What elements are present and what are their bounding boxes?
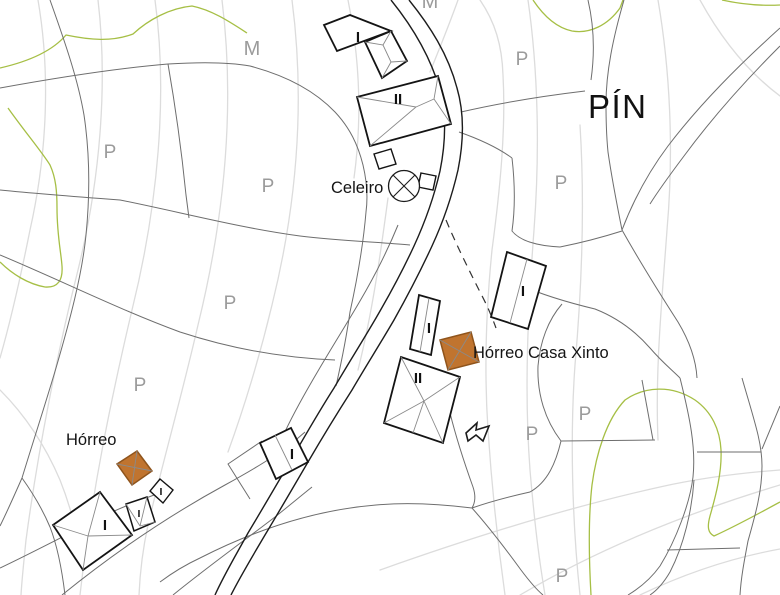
label-bld-diamond-i: I xyxy=(160,486,163,498)
label-celeiro: Celeiro xyxy=(331,179,383,197)
label-bld-narrow-i: I xyxy=(427,320,431,337)
label-bld-bottom-ii: II xyxy=(414,370,422,387)
label-bld-road-i: I xyxy=(290,446,294,463)
label-m-2: M xyxy=(422,0,439,13)
label-p-1: P xyxy=(104,142,117,163)
label-bld-top-ii: II xyxy=(394,91,402,108)
label-horreo-casa-xinto: Hórreo Casa Xinto xyxy=(473,344,609,362)
label-horreo: Hórreo xyxy=(66,431,116,449)
label-p-8: P xyxy=(579,404,592,425)
label-m-1: M xyxy=(244,38,261,60)
label-p-5: P xyxy=(516,49,529,70)
label-bld-small-i: I xyxy=(138,508,141,520)
small-square-2 xyxy=(418,173,436,190)
label-bld-top-i: I xyxy=(356,29,360,46)
label-bld-mid-i: I xyxy=(521,283,525,300)
map-canvas[interactable]: PÍNCeleiroHórreo Casa XintoHórreoMMPPPPP… xyxy=(0,0,780,595)
label-pin: PÍN xyxy=(588,88,648,125)
label-p-9: P xyxy=(556,566,569,587)
label-p-2: P xyxy=(262,176,275,197)
cadastral-map[interactable]: PÍNCeleiroHórreo Casa XintoHórreoMMPPPPP… xyxy=(0,0,780,595)
label-p-6: P xyxy=(555,173,568,194)
label-p-3: P xyxy=(224,293,237,314)
label-p-4: P xyxy=(134,375,147,396)
label-bld-big-i: I xyxy=(103,517,107,534)
label-p-7: P xyxy=(526,424,539,445)
